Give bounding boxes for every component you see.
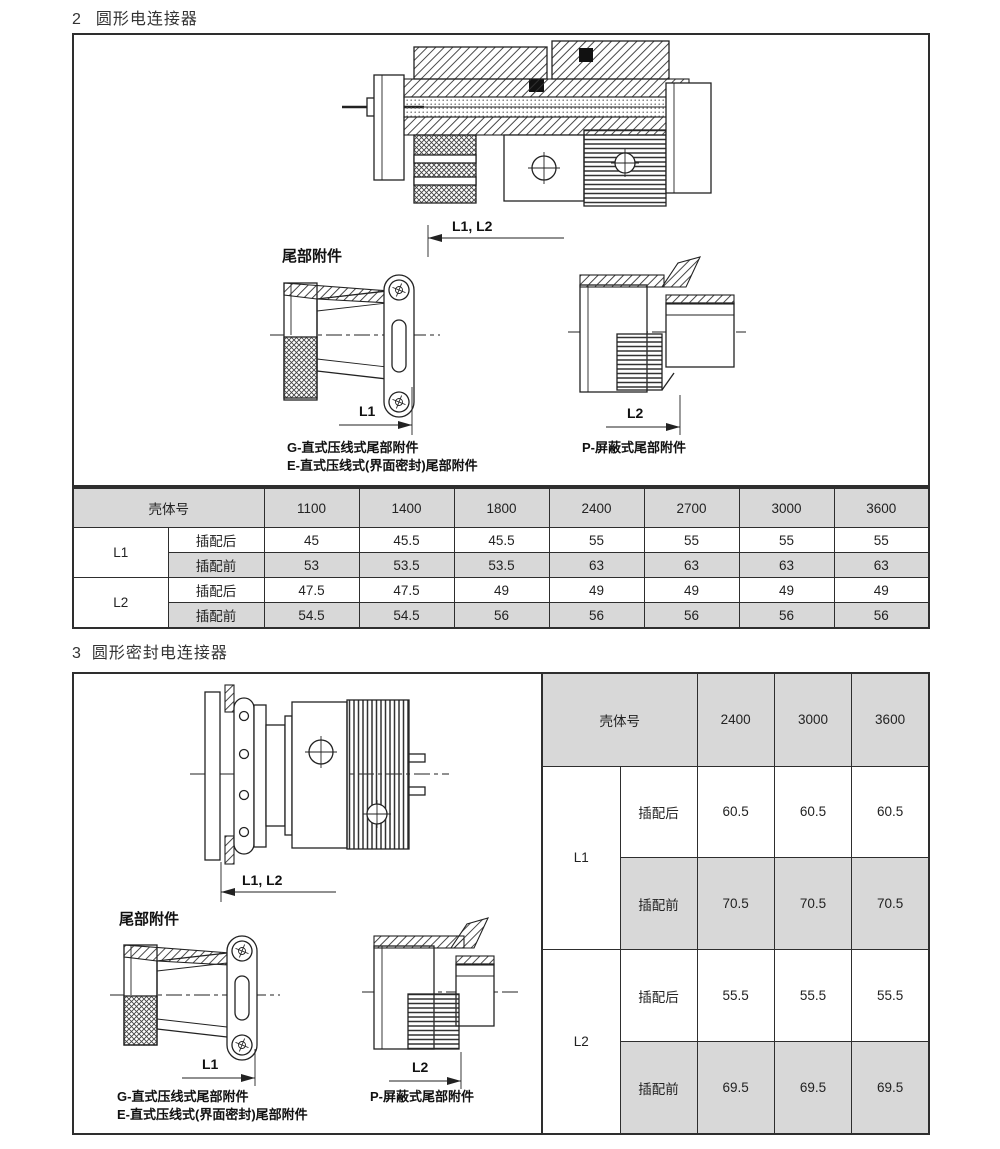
caption-e-type: E-直式压线式(界面密封)尾部附件 — [287, 457, 478, 475]
section3-technical-drawing — [74, 674, 539, 1133]
table-header-cell: 1800 — [454, 488, 549, 528]
caption-g-type: G-直式压线式尾部附件 — [117, 1088, 248, 1106]
section3-title-text: 圆形密封电连接器 — [92, 645, 228, 662]
table-cell: 56 — [739, 603, 834, 629]
dim-label-l1: L1 — [202, 1056, 218, 1072]
table-row: 插配前 54.5 54.5 56 56 56 56 56 — [73, 603, 929, 629]
table-cell: 55 — [739, 528, 834, 553]
table-cell: 47.5 — [359, 578, 454, 603]
row-group-label: L1 — [542, 766, 620, 950]
table-header-cell: 2700 — [644, 488, 739, 528]
section3-title: 3圆形密封电连接器 — [72, 639, 228, 663]
section3-dimension-table: 壳体号 2400 3000 3600 L1 插配后 60.5 60.5 60.5… — [541, 672, 930, 1135]
dim-label-l1: L1 — [359, 403, 375, 419]
section3-panel: L1, L2 尾部附件 L1 L2 G-直式压线式尾部附件 E-直式压线式(界面… — [72, 672, 930, 1135]
table-row: L2 插配后 55.5 55.5 55.5 — [542, 950, 929, 1042]
table-cell: 60.5 — [774, 766, 851, 858]
dim-label-l1l2: L1, L2 — [242, 872, 282, 888]
p-tail-accessory-drawing — [568, 257, 746, 435]
table-cell: 45.5 — [454, 528, 549, 553]
section2-technical-drawing — [74, 35, 928, 485]
section3-number: 3 — [72, 645, 82, 662]
table-row: 插配前 53 53.5 53.5 63 63 63 63 — [73, 553, 929, 578]
section2-number: 2 — [72, 11, 82, 28]
table-cell: 60.5 — [697, 766, 774, 858]
condition-label: 插配前 — [168, 603, 264, 629]
table-header-cell: 2400 — [549, 488, 644, 528]
table-cell: 49 — [549, 578, 644, 603]
caption-g-type: G-直式压线式尾部附件 — [287, 439, 418, 457]
table-cell: 56 — [549, 603, 644, 629]
table-cell: 55.5 — [774, 950, 851, 1042]
dim-label-l1l2: L1, L2 — [452, 218, 492, 234]
table-cell: 55.5 — [852, 950, 929, 1042]
dim-label-l2: L2 — [412, 1059, 428, 1075]
table-cell: 49 — [834, 578, 929, 603]
table-cell: 54.5 — [359, 603, 454, 629]
table-cell: 69.5 — [774, 1042, 851, 1134]
table-cell: 53.5 — [454, 553, 549, 578]
table-cell: 63 — [644, 553, 739, 578]
mated-pair-cross-section — [342, 41, 711, 257]
g-tail-accessory-drawing — [110, 936, 280, 1086]
table-cell: 53.5 — [359, 553, 454, 578]
table-cell: 49 — [644, 578, 739, 603]
table-header-cell: 3600 — [834, 488, 929, 528]
table-cell: 60.5 — [852, 766, 929, 858]
table-cell: 45.5 — [359, 528, 454, 553]
table-header-cell: 3000 — [739, 488, 834, 528]
table-cell: 69.5 — [697, 1042, 774, 1134]
table-header-cell: 2400 — [697, 673, 774, 766]
section2-dimension-table: 壳体号 1100 1400 1800 2400 2700 3000 3600 L… — [72, 487, 930, 629]
caption-p-type: P-屏蔽式尾部附件 — [582, 439, 686, 457]
table-cell: 49 — [454, 578, 549, 603]
table-cell: 70.5 — [852, 858, 929, 950]
table-header-cell: 1100 — [264, 488, 359, 528]
sealed-receptacle-cross-section — [190, 685, 449, 902]
row-group-label: L2 — [73, 578, 168, 629]
g-tail-accessory-drawing — [270, 275, 440, 435]
condition-label: 插配前 — [620, 1042, 697, 1134]
section2-title: 2圆形电连接器 — [72, 5, 198, 29]
caption-p-type: P-屏蔽式尾部附件 — [370, 1088, 474, 1106]
section2-title-text: 圆形电连接器 — [96, 11, 198, 28]
table-cell: 63 — [834, 553, 929, 578]
table-cell: 56 — [644, 603, 739, 629]
row-group-label: L1 — [73, 528, 168, 578]
table-header-shell-size: 壳体号 — [73, 488, 264, 528]
condition-label: 插配前 — [620, 858, 697, 950]
table-cell: 63 — [739, 553, 834, 578]
table-cell: 55 — [834, 528, 929, 553]
condition-label: 插配后 — [168, 528, 264, 553]
row-group-label: L2 — [542, 950, 620, 1134]
condition-label: 插配前 — [168, 553, 264, 578]
condition-label: 插配后 — [168, 578, 264, 603]
table-cell: 55 — [549, 528, 644, 553]
table-header-cell: 3600 — [852, 673, 929, 766]
table-header-cell: 1400 — [359, 488, 454, 528]
table-row: L1 插配后 60.5 60.5 60.5 — [542, 766, 929, 858]
table-cell: 55 — [644, 528, 739, 553]
table-header-cell: 3000 — [774, 673, 851, 766]
table-cell: 54.5 — [264, 603, 359, 629]
table-cell: 70.5 — [697, 858, 774, 950]
dim-label-l2: L2 — [627, 405, 643, 421]
p-tail-accessory-drawing — [362, 918, 519, 1089]
table-cell: 55.5 — [697, 950, 774, 1042]
table-cell: 45 — [264, 528, 359, 553]
table-cell: 63 — [549, 553, 644, 578]
condition-label: 插配后 — [620, 766, 697, 858]
table-cell: 56 — [454, 603, 549, 629]
section2-drawing-panel: L1, L2 尾部附件 L1 L2 G-直式压线式尾部附件 E-直式压线式(界面… — [72, 33, 930, 487]
condition-label: 插配后 — [620, 950, 697, 1042]
table-cell: 49 — [739, 578, 834, 603]
table-header-shell-size: 壳体号 — [542, 673, 697, 766]
caption-e-type: E-直式压线式(界面密封)尾部附件 — [117, 1106, 308, 1124]
table-cell: 56 — [834, 603, 929, 629]
tail-accessories-heading: 尾部附件 — [119, 908, 179, 929]
table-row: L2 插配后 47.5 47.5 49 49 49 49 49 — [73, 578, 929, 603]
table-cell: 53 — [264, 553, 359, 578]
table-cell: 70.5 — [774, 858, 851, 950]
catalog-page: 2圆形电连接器 — [0, 0, 1000, 1149]
tail-accessories-heading: 尾部附件 — [282, 245, 342, 266]
table-cell: 47.5 — [264, 578, 359, 603]
table-row: L1 插配后 45 45.5 45.5 55 55 55 55 — [73, 528, 929, 553]
section3-table-area: 壳体号 2400 3000 3600 L1 插配后 60.5 60.5 60.5… — [541, 672, 930, 1135]
table-cell: 69.5 — [852, 1042, 929, 1134]
